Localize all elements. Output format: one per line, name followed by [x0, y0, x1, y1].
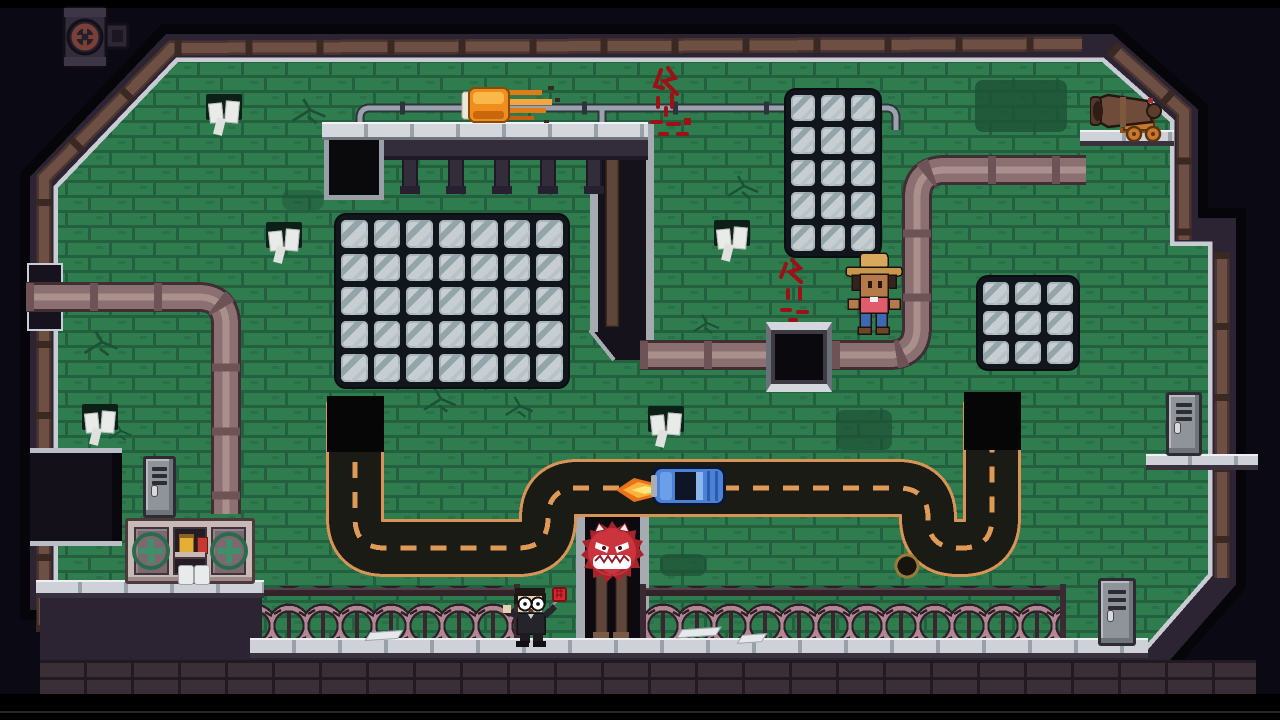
glass-pane: [471, 254, 498, 282]
cowboy-character: [843, 250, 905, 336]
glass-pane: [851, 127, 875, 153]
glass-pane: [983, 341, 1009, 364]
glass-pane: [1015, 311, 1041, 334]
glass-pane: [504, 287, 531, 315]
blue-car: [650, 462, 730, 510]
glass-pane: [471, 321, 498, 349]
cannon: [1090, 86, 1170, 142]
glass-pane: [536, 321, 563, 349]
bottom-wall-patch: [40, 596, 262, 666]
platform-bracket: [448, 160, 464, 188]
locker-vent: [1176, 403, 1193, 407]
green-cross-icon: [132, 532, 170, 570]
glass-pane: [821, 95, 845, 121]
glass-pane: [341, 321, 368, 349]
bottom-divider-line: [0, 711, 1280, 713]
glass-pane: [821, 127, 845, 153]
locker-handle: [1174, 422, 1181, 434]
glass-pane: [851, 192, 875, 218]
right-locker-ledge: [1146, 454, 1258, 470]
glass-pane: [504, 220, 531, 248]
locker-vent: [1108, 598, 1126, 602]
glass-pane: [439, 354, 466, 382]
glass-pane: [374, 254, 401, 282]
glass-pane: [439, 220, 466, 248]
manhole: [896, 555, 918, 577]
green-cross-icon: [210, 532, 248, 570]
platform-bracket: [494, 160, 510, 188]
paper-towels: [714, 220, 750, 266]
glass-pane: [791, 192, 815, 218]
valve-hatch: [56, 6, 132, 70]
paper-towels: [206, 94, 242, 140]
glass-pane: [471, 354, 498, 382]
glass-window-big: [336, 215, 568, 387]
glass-pane: [791, 127, 815, 153]
paper-roll: [178, 565, 194, 585]
glass-pane: [1047, 282, 1073, 305]
locker-vent: [1108, 590, 1126, 594]
glass-pane: [983, 311, 1009, 334]
glass-pane: [374, 220, 401, 248]
wall-hatch: [766, 322, 832, 392]
glass-pane: [471, 220, 498, 248]
glass-pane: [374, 321, 401, 349]
glass-pane: [406, 354, 433, 382]
glass-pane: [471, 287, 498, 315]
glass-pane: [536, 254, 563, 282]
cabinet-door-left: [134, 527, 169, 575]
glass-pane: [1047, 311, 1073, 334]
glass-pane: [374, 354, 401, 382]
paper-towels: [266, 222, 302, 268]
paper-towels: [82, 404, 118, 450]
road-pit-left: [327, 396, 384, 452]
glass-pane: [406, 220, 433, 248]
agent-character: [503, 586, 567, 648]
locker-left: [143, 456, 176, 518]
glass-pane: [406, 254, 433, 282]
glass-pane: [406, 321, 433, 349]
locker-bottom-right: [1098, 578, 1136, 646]
locker-handle: [1107, 610, 1114, 622]
glass-pane: [341, 354, 368, 382]
bottom-brick-band: [40, 660, 1256, 694]
metal-platform-underside: [384, 140, 648, 160]
glass-pane: [983, 282, 1009, 305]
locker-handle: [151, 485, 158, 497]
glass-pane: [536, 220, 563, 248]
glass-pane: [504, 254, 531, 282]
glass-pane: [851, 160, 875, 186]
fireball: [460, 84, 560, 128]
locker-vent: [152, 467, 167, 471]
dark-passage: [30, 448, 122, 546]
glass-pane: [821, 192, 845, 218]
platform-bracket: [540, 160, 556, 188]
glass-pane: [439, 287, 466, 315]
glass-pane: [341, 254, 368, 282]
glass-pane: [406, 287, 433, 315]
road-pit-right: [964, 392, 1021, 450]
first-aid-cabinet: [125, 518, 255, 584]
graffiti-red: [638, 64, 700, 144]
locker-right: [1166, 392, 1202, 456]
cabinet-shelf: [175, 552, 206, 559]
bottom-letterbox: [0, 694, 1280, 720]
glass-window-tall: [786, 90, 880, 256]
cabinet-open-shelf: [173, 527, 208, 575]
glass-pane: [1015, 341, 1041, 364]
glass-pane: [504, 354, 531, 382]
glass-pane: [791, 225, 815, 251]
glass-pane: [851, 225, 875, 251]
graffiti-red: [774, 256, 820, 328]
glass-pane: [1047, 341, 1073, 364]
spike-monster: [580, 520, 644, 584]
glass-pane: [341, 220, 368, 248]
glass-pane: [1015, 282, 1041, 305]
glass-window-small: [978, 277, 1078, 369]
glass-pane: [536, 354, 563, 382]
glass-pane: [504, 321, 531, 349]
paper-towels: [648, 406, 684, 452]
glass-pane: [439, 321, 466, 349]
glass-pane: [791, 95, 815, 121]
platform-bracket: [586, 160, 602, 188]
glass-pane: [374, 287, 401, 315]
platform-bracket: [402, 160, 418, 188]
game-viewport[interactable]: [0, 0, 1280, 720]
locker-vent: [152, 474, 167, 478]
glass-pane: [851, 95, 875, 121]
glass-pane: [341, 287, 368, 315]
cabinet-door-right: [211, 527, 246, 575]
glass-pane: [536, 287, 563, 315]
paper-roll: [194, 565, 210, 585]
glass-pane: [439, 254, 466, 282]
glass-pane: [821, 225, 845, 251]
floor-ledge: [250, 638, 1148, 658]
locker-vent: [1176, 417, 1193, 421]
glass-pane: [791, 160, 815, 186]
glass-pane: [821, 160, 845, 186]
platform-pit: [324, 140, 384, 200]
top-letterbox: [0, 0, 1280, 8]
locker-vent: [1176, 410, 1193, 414]
